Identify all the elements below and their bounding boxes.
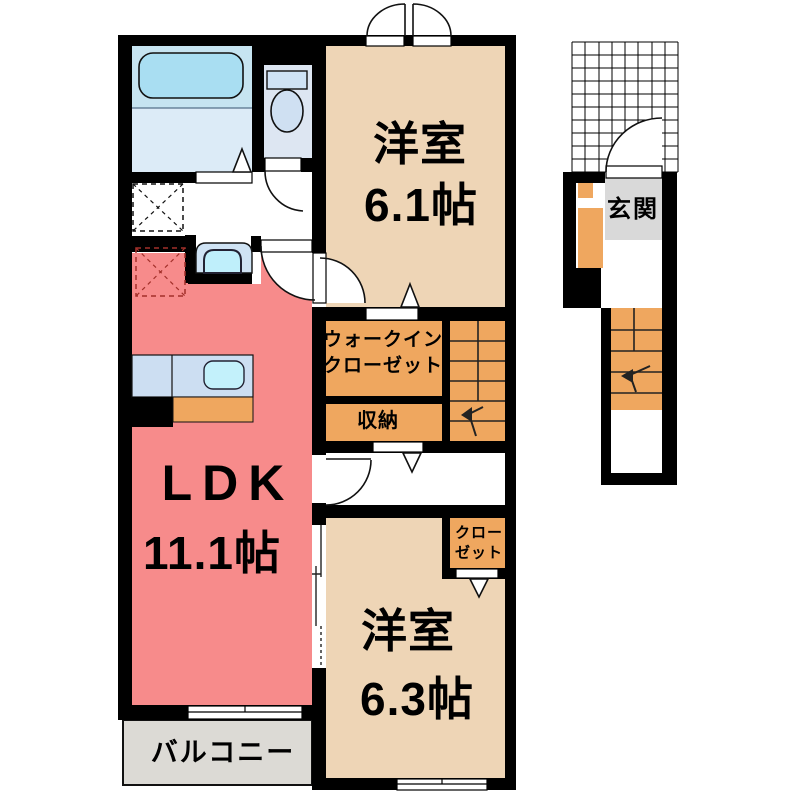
- bathroom-lower-floor: [132, 108, 252, 172]
- ldk-door-leaf: [261, 240, 312, 252]
- bedroom2-name: 洋室: [361, 608, 455, 654]
- shoe-cabinet-large: [578, 208, 603, 268]
- top-window-arc-right: [413, 4, 451, 36]
- kitchen-sink-icon: [204, 361, 244, 389]
- kitchen-base-block: [132, 397, 173, 427]
- bedroom1-size: 6.1帖: [364, 182, 478, 228]
- bedroom1-floor: [326, 46, 505, 307]
- stairs-entrance-floor: [611, 308, 662, 410]
- wic-label-1: ウォークイン: [323, 331, 443, 350]
- bathroom-door-leaf: [196, 172, 252, 183]
- wic-label-2: クローゼット: [323, 357, 443, 376]
- toilet-door-leaf: [265, 158, 301, 171]
- entrance-label: 玄関: [607, 198, 659, 222]
- corridor-door-arc: [326, 459, 371, 505]
- closet-door-leaf: [456, 569, 498, 578]
- bedroom1-window-leaf-left: [366, 36, 404, 46]
- balcony-label: バルコニー: [151, 740, 295, 767]
- entrance-door-swing: [606, 118, 662, 172]
- ldk-name: LDK: [162, 458, 295, 508]
- bedroom1-name: 洋室: [373, 121, 467, 167]
- wall-openings: [312, 455, 326, 668]
- closet-label-1: クロー: [455, 526, 503, 541]
- bedroom2-size: 6.3帖: [360, 676, 474, 722]
- storage-door-leaf: [373, 442, 423, 452]
- wic-door-leaf: [366, 308, 418, 320]
- kitchen-counter-bar: [173, 397, 253, 422]
- floorplan: 洋室 6.1帖 ウォークイン クローゼット 収納 LDK 11.1帖 クロー ゼ…: [0, 0, 800, 800]
- top-window-arc-left: [367, 4, 405, 36]
- bedroom1-window-leaf-right: [413, 36, 451, 46]
- closet-label-2: ゼット: [455, 546, 503, 561]
- shoe-cabinet-small: [578, 183, 593, 198]
- toilet-tank-icon: [267, 71, 307, 89]
- toilet-bowl-icon: [271, 90, 303, 132]
- bedroom1-door-leaf: [313, 253, 326, 303]
- storage-door-triangle: [403, 453, 421, 472]
- entrance-door-leaf: [606, 166, 662, 178]
- bathtub-icon: [139, 53, 243, 98]
- toilet-door-arc: [265, 171, 303, 211]
- storage-label: 収納: [357, 411, 399, 431]
- ldk-size: 11.1帖: [143, 530, 281, 576]
- washbasin-bowl-icon: [204, 250, 241, 273]
